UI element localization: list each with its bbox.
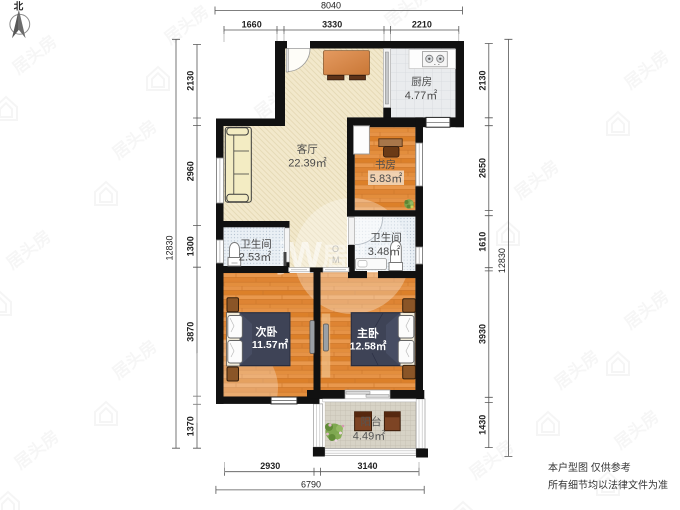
svg-text:1300: 1300 (186, 236, 196, 256)
svg-text:卫生间: 卫生间 (370, 231, 402, 244)
svg-text:1430: 1430 (477, 415, 487, 435)
svg-text:12.58㎡: 12.58㎡ (350, 340, 387, 353)
svg-text:3870: 3870 (186, 322, 196, 342)
svg-text:12830: 12830 (165, 235, 175, 260)
svg-text:2210: 2210 (412, 20, 432, 30)
svg-text:次卧: 次卧 (256, 325, 278, 339)
svg-text:8040: 8040 (321, 1, 341, 11)
svg-text:2130: 2130 (186, 71, 196, 91)
svg-text:22.39㎡: 22.39㎡ (288, 157, 327, 170)
svg-text:4.49㎡: 4.49㎡ (353, 430, 385, 443)
svg-text:6790: 6790 (301, 479, 321, 489)
svg-text:本户型图 仅供参考: 本户型图 仅供参考 (548, 461, 631, 474)
svg-text:M: M (332, 255, 340, 265)
svg-text:1660: 1660 (242, 20, 262, 30)
svg-text:11.57㎡: 11.57㎡ (252, 338, 289, 351)
svg-text:3.48㎡: 3.48㎡ (368, 245, 400, 258)
svg-text:卫生间: 卫生间 (240, 238, 272, 251)
svg-text:2930: 2930 (260, 461, 280, 471)
svg-text:阳台: 阳台 (361, 415, 382, 428)
svg-text:主卧: 主卧 (357, 326, 379, 340)
svg-text:2960: 2960 (186, 161, 196, 181)
svg-text:3140: 3140 (357, 461, 377, 471)
svg-text:2130: 2130 (477, 70, 487, 90)
svg-text:12830: 12830 (497, 248, 507, 273)
svg-text:客厅: 客厅 (297, 143, 318, 156)
svg-text:1610: 1610 (477, 232, 487, 252)
svg-text:4.77㎡: 4.77㎡ (405, 89, 437, 102)
svg-text:O: O (332, 244, 339, 254)
svg-text:2650: 2650 (477, 158, 487, 178)
svg-text:2.53㎡: 2.53㎡ (239, 251, 271, 264)
svg-text:书房: 书房 (375, 158, 396, 171)
svg-text:所有细节均以法律文件为准: 所有细节均以法律文件为准 (548, 479, 668, 492)
svg-text:5.83㎡: 5.83㎡ (370, 172, 402, 185)
svg-text:3330: 3330 (322, 20, 342, 30)
svg-text:3930: 3930 (477, 324, 487, 344)
svg-text:厨房: 厨房 (411, 75, 432, 88)
